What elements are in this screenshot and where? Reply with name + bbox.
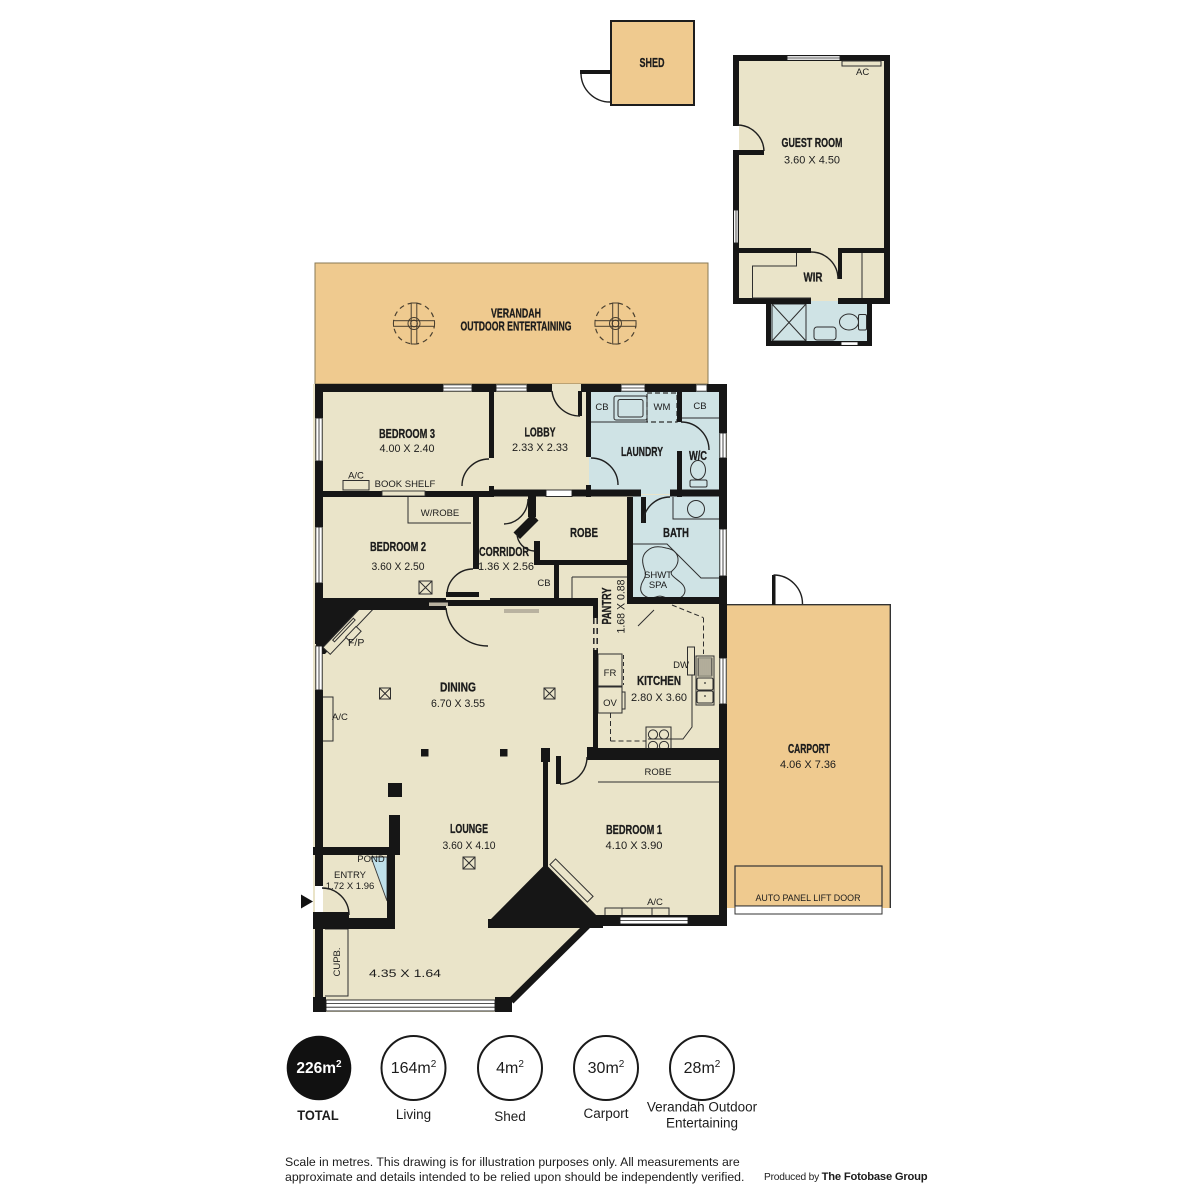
svg-text:WIR: WIR [804,270,823,285]
svg-text:POND: POND [357,854,385,865]
svg-text:2.80 X 3.60: 2.80 X 3.60 [631,692,687,704]
svg-text:CUPB.: CUPB. [332,947,343,976]
svg-text:Living: Living [396,1107,431,1122]
svg-text:3.60 X 4.10: 3.60 X 4.10 [443,840,496,852]
svg-text:OUTDOOR ENTERTAINING: OUTDOOR ENTERTAINING [461,319,572,334]
svg-text:Verandah Outdoor: Verandah Outdoor [647,1100,758,1115]
svg-text:A/C: A/C [332,712,348,723]
svg-text:F/P: F/P [348,637,364,649]
svg-text:TOTAL: TOTAL [297,1108,339,1123]
svg-text:1.68 X 0.88: 1.68 X 0.88 [616,580,628,634]
svg-text:6.70 X 3.55: 6.70 X 3.55 [431,698,485,710]
svg-text:FR: FR [604,668,617,679]
svg-text:ENTRY: ENTRY [334,870,367,881]
svg-text:226m2: 226m2 [296,1059,342,1077]
svg-text:4.06 X 7.36: 4.06 X 7.36 [780,759,836,771]
svg-text:LAUNDRY: LAUNDRY [621,444,663,459]
svg-text:approximate and details intend: approximate and details intended to be r… [285,1170,744,1184]
svg-text:AC: AC [856,67,869,78]
svg-text:WM: WM [654,402,671,413]
svg-text:W/ROBE: W/ROBE [421,508,460,519]
svg-text:A/C: A/C [348,471,364,482]
svg-text:Scale in metres. This drawing: Scale in metres. This drawing is for ill… [285,1155,740,1169]
svg-text:CB: CB [693,401,706,412]
svg-text:1.36 X 2.56: 1.36 X 2.56 [478,561,534,573]
svg-text:DINING: DINING [440,680,476,695]
svg-text:A/C: A/C [647,897,663,908]
svg-text:KITCHEN: KITCHEN [637,673,681,688]
svg-text:CB: CB [537,578,550,589]
svg-text:AUTO PANEL LIFT DOOR: AUTO PANEL LIFT DOOR [756,893,861,904]
svg-text:OV: OV [603,698,617,709]
svg-text:LOBBY: LOBBY [525,425,556,440]
svg-text:4.00 X 2.40: 4.00 X 2.40 [380,443,435,455]
svg-text:Carport: Carport [583,1106,628,1121]
svg-text:BEDROOM 3: BEDROOM 3 [379,426,435,441]
svg-text:BEDROOM 1: BEDROOM 1 [606,822,662,837]
svg-text:4.35 X 1.64: 4.35 X 1.64 [369,968,441,980]
svg-text:ROBE: ROBE [645,767,672,778]
svg-text:164m2: 164m2 [391,1059,437,1077]
svg-text:GUEST ROOM: GUEST ROOM [782,135,843,150]
svg-text:DW: DW [673,660,689,671]
svg-text:SPA: SPA [649,580,668,591]
svg-text:Entertaining: Entertaining [666,1116,738,1131]
svg-text:BATH: BATH [663,525,689,540]
svg-text:3.60 X 4.50: 3.60 X 4.50 [784,155,840,167]
svg-text:3.60 X 2.50: 3.60 X 2.50 [372,561,425,573]
svg-text:2.33 X 2.33: 2.33 X 2.33 [512,442,568,454]
svg-text:W/C: W/C [689,448,707,463]
svg-text:SHED: SHED [640,55,665,70]
svg-text:CARPORT: CARPORT [788,741,830,756]
svg-text:CORRIDOR: CORRIDOR [479,544,529,559]
svg-text:PANTRY: PANTRY [599,587,614,624]
svg-text:BOOK SHELF: BOOK SHELF [375,479,436,490]
svg-text:Shed: Shed [494,1109,526,1124]
svg-text:Produced by The Fotobase Group: Produced by The Fotobase Group [764,1171,928,1183]
svg-text:CB: CB [595,402,608,413]
svg-text:BEDROOM 2: BEDROOM 2 [370,539,426,554]
svg-text:LOUNGE: LOUNGE [450,821,488,836]
svg-text:ROBE: ROBE [570,525,598,540]
svg-text:4.10 X 3.90: 4.10 X 3.90 [606,840,663,852]
